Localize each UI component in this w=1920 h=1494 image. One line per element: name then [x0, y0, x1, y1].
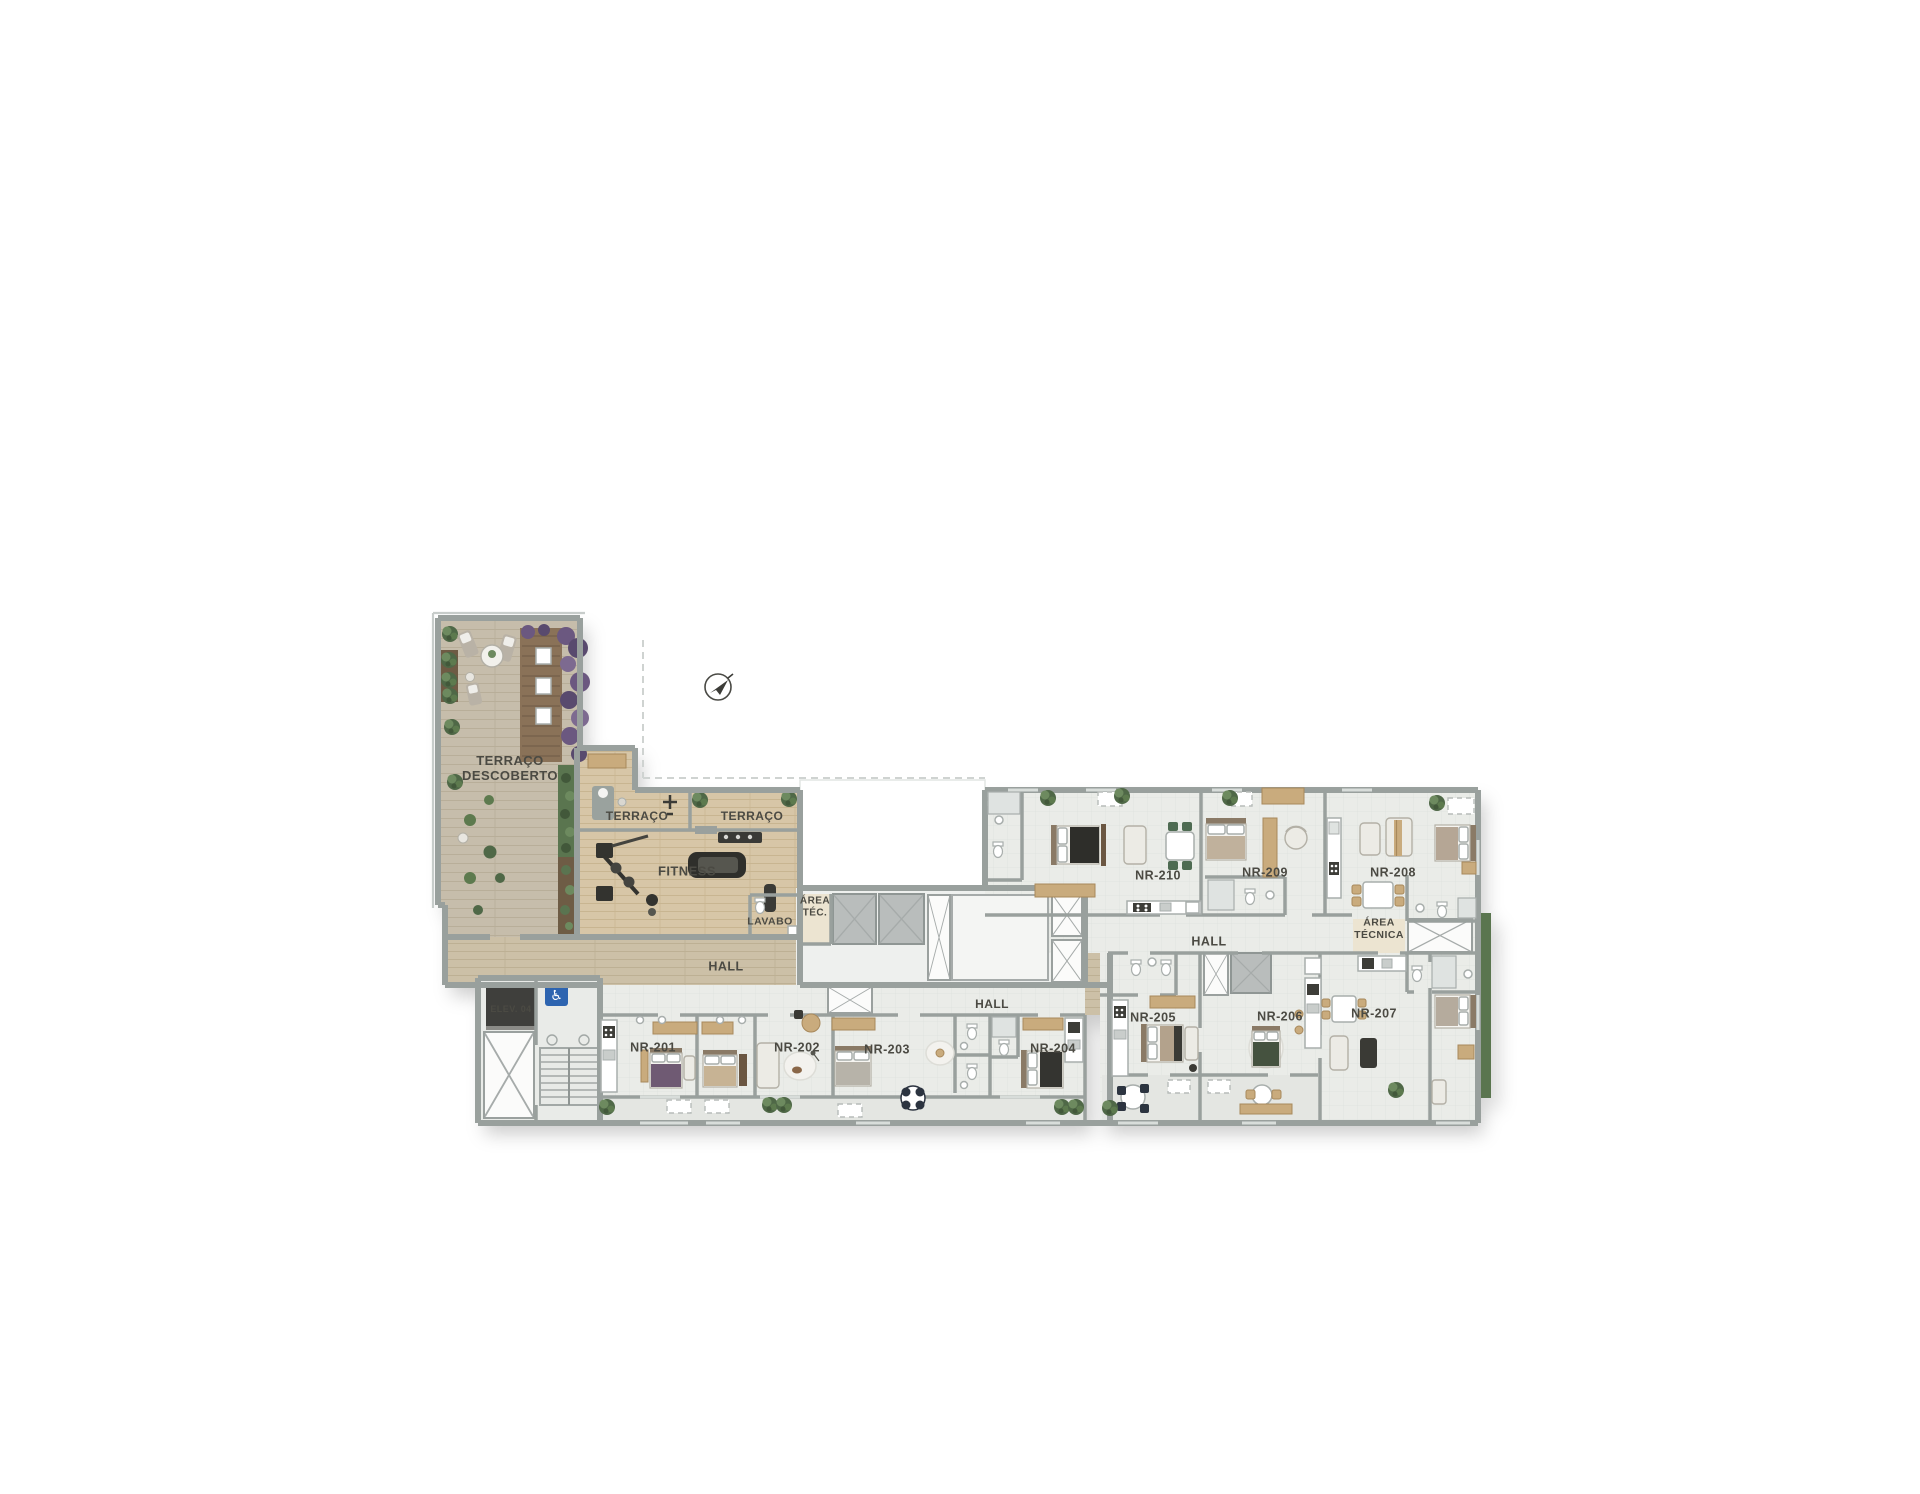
label-fitness: FITNESS	[658, 864, 716, 879]
bed	[1435, 825, 1476, 861]
label-terraco-descoberto: TERRAÇODESCOBERTO	[462, 753, 558, 783]
label-elev-04: ELEV. 04	[490, 1004, 531, 1014]
label-nr-203: NR-203	[864, 1042, 910, 1056]
label-nr-208: NR-208	[1370, 865, 1416, 879]
label-hall-center: HALL	[975, 997, 1009, 1011]
north-arrow-icon	[705, 674, 733, 700]
bed	[1435, 995, 1476, 1028]
label-nr-205: NR-205	[1130, 1010, 1176, 1024]
open-void	[800, 780, 985, 888]
label-nr-206: NR-206	[1257, 1009, 1303, 1023]
label-terraco-1: TERRAÇO	[606, 809, 668, 823]
label-lavabo: LAVABO	[747, 916, 792, 928]
floor-plan: ♿	[0, 0, 1920, 1494]
label-nr-210: NR-210	[1135, 868, 1181, 882]
bed	[1141, 1024, 1183, 1062]
floor-plan-canvas: ♿	[0, 0, 1920, 1494]
machine-room	[952, 895, 1048, 980]
label-nr-209: NR-209	[1242, 865, 1288, 879]
terrace-door	[695, 826, 717, 834]
bed	[1051, 825, 1099, 865]
bed	[1206, 818, 1246, 860]
label-terraco-2: TERRAÇO	[721, 809, 783, 823]
bw-rug	[901, 1086, 925, 1110]
bed	[703, 1050, 737, 1087]
svg-text:♿: ♿	[550, 988, 563, 1004]
bed	[1252, 1026, 1280, 1067]
label-hall-left: HALL	[708, 959, 743, 973]
label-area-tec: ÁREATÉC.	[800, 894, 830, 919]
upper-floor-projection-line	[643, 640, 985, 778]
label-nr-202: NR-202	[774, 1040, 820, 1054]
label-hall-right: HALL	[1191, 934, 1226, 948]
bed	[1021, 1050, 1063, 1088]
label-nr-201: NR-201	[630, 1040, 676, 1054]
label-nr-204: NR-204	[1030, 1041, 1076, 1055]
label-nr-207: NR-207	[1351, 1006, 1397, 1020]
